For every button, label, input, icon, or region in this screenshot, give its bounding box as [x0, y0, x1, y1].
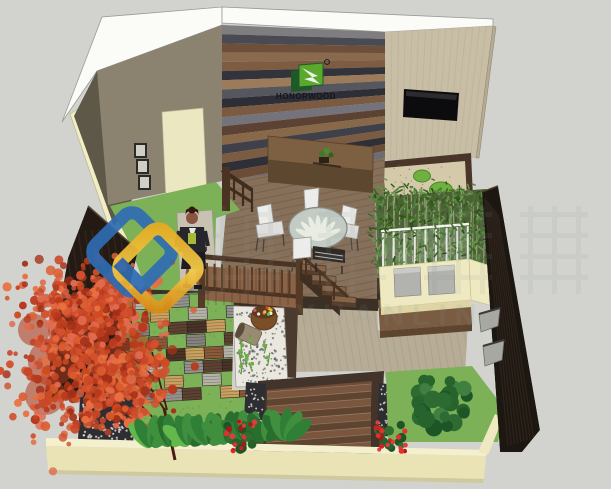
svg-text:YUANLIN: YUANLIN — [295, 299, 484, 332]
svg-text:HONORWOOD: HONORWOOD — [276, 92, 336, 101]
